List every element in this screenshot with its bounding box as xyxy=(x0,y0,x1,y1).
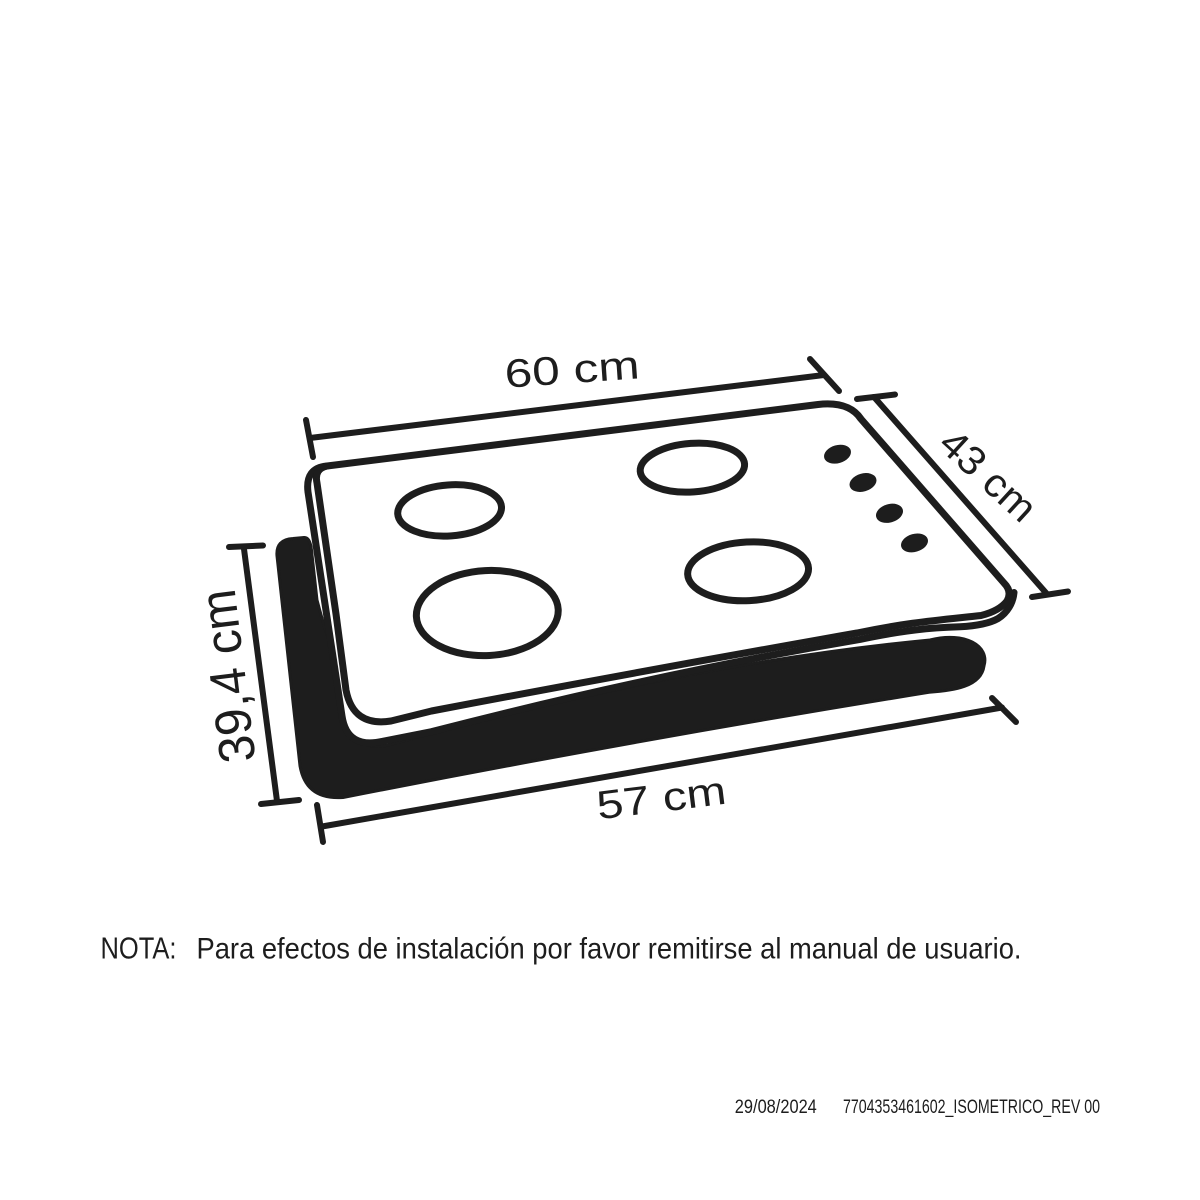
svg-text:29/08/2024: 29/08/2024 xyxy=(735,1096,817,1118)
svg-text:60 cm: 60 cm xyxy=(503,343,641,396)
svg-text:7704353461602_ISOMETRICO_REV 0: 7704353461602_ISOMETRICO_REV 00 xyxy=(843,1096,1100,1118)
svg-text:NOTA:: NOTA: xyxy=(101,932,177,966)
svg-text:Para efectos de instalación po: Para efectos de instalación por favor re… xyxy=(197,933,1022,966)
